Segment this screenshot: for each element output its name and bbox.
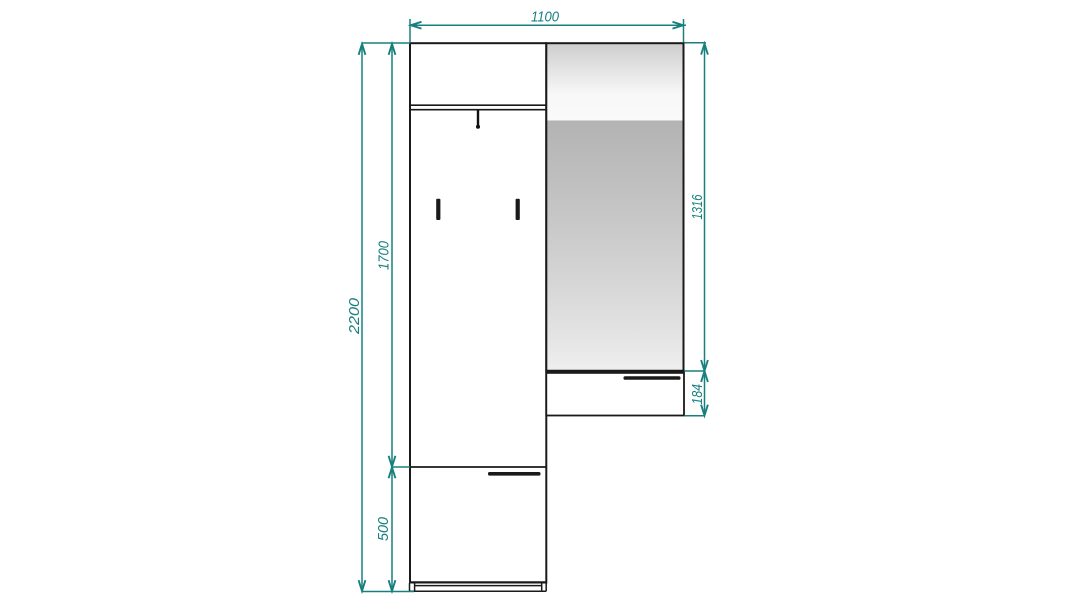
svg-text:1700: 1700 <box>376 240 393 270</box>
svg-text:184: 184 <box>689 384 706 405</box>
svg-text:500: 500 <box>375 516 392 541</box>
svg-text:1100: 1100 <box>531 9 560 26</box>
svg-text:1316: 1316 <box>689 194 706 219</box>
svg-text:2200: 2200 <box>346 297 363 335</box>
